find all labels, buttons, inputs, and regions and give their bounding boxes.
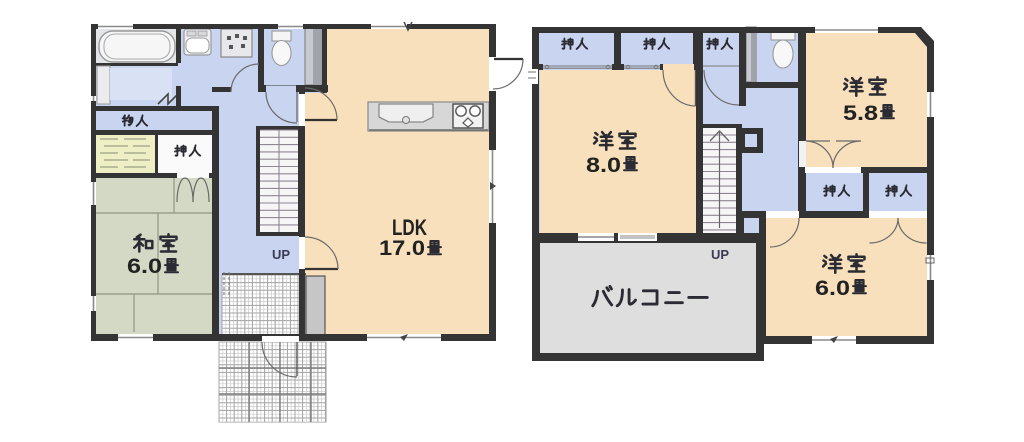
svg-text:5.8: 5.8 <box>843 102 878 125</box>
svg-text:8.0: 8.0 <box>586 154 621 177</box>
svg-text:6.0: 6.0 <box>815 277 850 300</box>
svg-text:UP: UP <box>272 247 290 262</box>
svg-text:6.0: 6.0 <box>127 255 162 278</box>
svg-text:17.0: 17.0 <box>379 237 425 260</box>
svg-text:UP: UP <box>711 247 729 262</box>
